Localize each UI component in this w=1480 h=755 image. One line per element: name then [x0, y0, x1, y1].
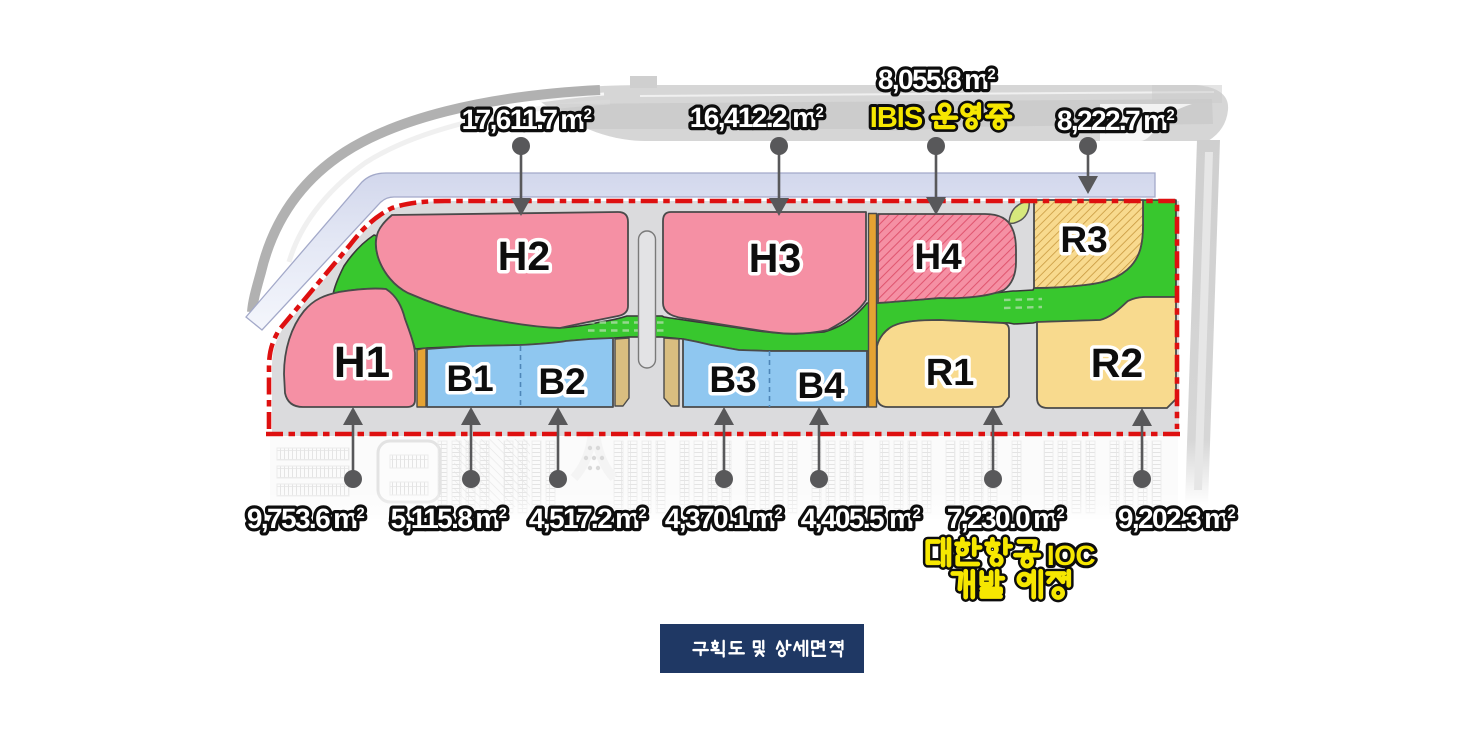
svg-text:9,202.3 m2: 9,202.3 m2 — [1118, 503, 1236, 534]
svg-text:H1: H1 — [334, 338, 390, 387]
svg-text:9,753.6 m2: 9,753.6 m2 — [247, 503, 365, 534]
svg-text:4,517.2 m2: 4,517.2 m2 — [529, 503, 647, 534]
svg-text:R2: R2 — [1091, 340, 1143, 386]
svg-text:IBIS: IBIS — [870, 102, 923, 134]
svg-text:B4: B4 — [797, 365, 845, 406]
svg-text:8,222.7 m2: 8,222.7 m2 — [1057, 105, 1175, 136]
svg-text:B3: B3 — [709, 359, 756, 400]
svg-text:H2: H2 — [498, 233, 550, 279]
svg-text:8,055.8 m2: 8,055.8 m2 — [878, 64, 996, 95]
svg-text:4,370.1 m2: 4,370.1 m2 — [665, 503, 783, 534]
svg-text:B1: B1 — [446, 358, 493, 399]
svg-text:R3: R3 — [1060, 219, 1107, 260]
svg-text:4,405.5 m2: 4,405.5 m2 — [801, 503, 921, 534]
svg-text:R1: R1 — [926, 352, 975, 394]
svg-text:17,611.7 m2: 17,611.7 m2 — [462, 104, 592, 135]
svg-text:16,412.2 m2: 16,412.2 m2 — [690, 102, 824, 133]
svg-text:H3: H3 — [749, 235, 801, 281]
svg-text:IOC: IOC — [1047, 540, 1096, 571]
svg-text:H4: H4 — [914, 236, 962, 277]
svg-text:7,230.0 m2: 7,230.0 m2 — [947, 503, 1065, 534]
svg-text:5,115.8 m2: 5,115.8 m2 — [391, 503, 507, 534]
svg-text:B2: B2 — [538, 361, 585, 402]
